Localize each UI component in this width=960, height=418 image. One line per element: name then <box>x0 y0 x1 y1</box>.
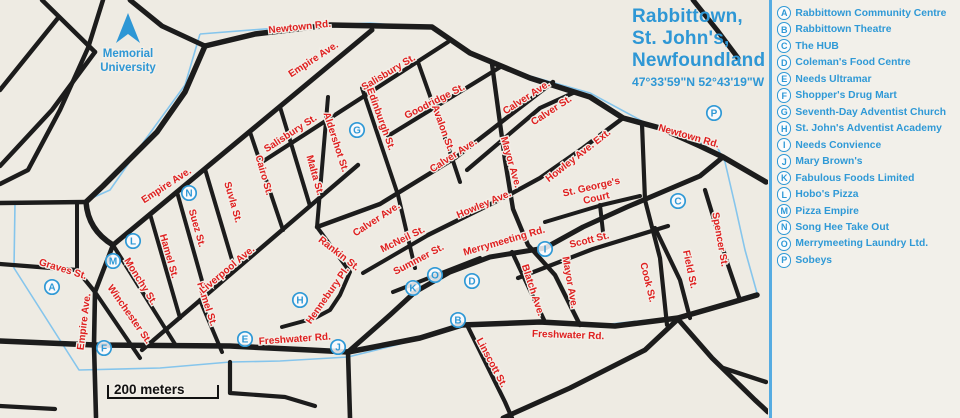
legend-item-p: PSobeys <box>777 253 960 267</box>
street-label-freshwater-rd: Freshwater Rd. <box>258 331 331 347</box>
street-label-mayor-ave: Mayor Ave. <box>498 136 523 190</box>
legend-marker-icon-m: M <box>777 204 791 218</box>
legend-item-h: HSt. John's Adventist Academy <box>777 121 960 135</box>
legend-marker-icon-a: A <box>777 6 791 20</box>
legend-label: The HUB <box>795 41 838 52</box>
legend-marker-icon-h: H <box>777 121 791 135</box>
legend-item-e: ENeeds Ultramar <box>777 72 960 86</box>
street-label-mayor-ave: Mayor Ave. <box>559 256 579 310</box>
legend-item-o: OMerrymeeting Laundry Ltd. <box>777 237 960 251</box>
memorial-university-label: University <box>100 62 156 74</box>
road <box>348 352 350 418</box>
street-label-cook-st: Cook St. <box>637 261 658 303</box>
legend-item-f: FShopper's Drug Mart <box>777 88 960 102</box>
legend-label: Seventh-Day Adventist Church <box>795 107 946 118</box>
legend-label: Coleman's Food Centre <box>795 57 910 68</box>
legend-marker-icon-c: C <box>777 39 791 53</box>
road <box>94 245 113 417</box>
legend-item-a: ARabbittown Community Centre <box>777 6 960 20</box>
map-marker-letter-d: D <box>468 277 475 288</box>
map-title-line2: St. John's, <box>632 28 782 50</box>
legend-panel: ARabbittown Community CentreBRabbittown … <box>769 0 960 418</box>
memorial-university-label: Memorial <box>103 48 154 60</box>
map-marker-letter-c: C <box>674 197 681 208</box>
legend-item-n: NSong Hee Take Out <box>777 220 960 234</box>
legend-item-k: KFabulous Foods Limited <box>777 171 960 185</box>
legend-marker-icon-o: O <box>777 237 791 251</box>
legend-item-b: BRabbittown Theatre <box>777 22 960 36</box>
legend-marker-icon-l: L <box>777 187 791 201</box>
legend-marker-icon-f: F <box>777 88 791 102</box>
legend-item-m: MPizza Empire <box>777 204 960 218</box>
map-marker-letter-e: E <box>242 335 249 346</box>
road <box>0 18 58 90</box>
legend-item-i: INeeds Convience <box>777 138 960 152</box>
map-marker-letter-f: F <box>101 344 107 355</box>
legend-marker-icon-b: B <box>777 22 791 36</box>
legend-label: Mary Brown's <box>795 156 862 167</box>
street-label-monchy-st: Monchy St. <box>121 256 159 307</box>
map-title-line1: Rabbittown, <box>632 6 782 28</box>
legend-item-l: LHobo's Pizza <box>777 187 960 201</box>
legend-label: Needs Ultramar <box>795 74 871 85</box>
street-label-freshwater-rd: Freshwater Rd. <box>532 329 605 343</box>
legend-marker-icon-i: I <box>777 138 791 152</box>
street-label-rankin-st: Rankin St. <box>316 235 361 274</box>
street-label-howley-ave-ext: Howley Ave. Ext. <box>544 127 613 185</box>
map-marker-letter-i: I <box>544 245 547 256</box>
street-label-avalon-st: Avalon St. <box>429 103 456 153</box>
map-marker-letter-h: H <box>296 296 303 307</box>
legend-label: Merrymeeting Laundry Ltd. <box>795 238 928 249</box>
map-title-line3: Newfoundland <box>632 50 782 72</box>
road <box>600 205 603 232</box>
legend-label: Song Hee Take Out <box>795 222 889 233</box>
map-marker-letter-p: P <box>711 109 718 120</box>
map-title: Rabbittown, St. John's, Newfoundland 47°… <box>632 6 782 89</box>
legend-marker-icon-n: N <box>777 220 791 234</box>
road <box>130 0 205 46</box>
street-label-salisbury-st: Salisbury St. <box>360 52 418 93</box>
legend-label: Fabulous Foods Limited <box>795 173 914 184</box>
legend-marker-icon-g: G <box>777 105 791 119</box>
legend-marker-icon-e: E <box>777 72 791 86</box>
map-marker-letter-k: K <box>409 284 417 295</box>
street-label-empire-ave: Empire Ave. <box>76 292 94 350</box>
street-label-newtown-rd: Newtown Rd. <box>657 123 721 151</box>
legend-label: Rabbittown Community Centre <box>795 8 946 19</box>
rabbittown-map-page: MemorialUniversityNewtown Rd.Newtown Rd.… <box>0 0 960 418</box>
map-marker-letter-a: A <box>48 283 55 294</box>
road <box>0 202 86 203</box>
map-marker-letter-n: N <box>185 189 192 200</box>
map-marker-letter-g: G <box>353 126 361 137</box>
map-marker-letter-b: B <box>454 316 461 327</box>
legend-item-d: DColeman's Food Centre <box>777 55 960 69</box>
legend-label: St. John's Adventist Academy <box>795 123 941 134</box>
legend-item-j: JMary Brown's <box>777 154 960 168</box>
street-label-cairo-st: Cairo St. <box>252 154 274 197</box>
legend-label: Sobeys <box>795 255 832 266</box>
legend-marker-icon-p: P <box>777 253 791 267</box>
road <box>677 318 768 412</box>
map-marker-letter-o: O <box>431 271 439 282</box>
street-label-spencer-st: Spencer St. <box>709 212 729 268</box>
road <box>230 362 315 406</box>
map-marker-letter-l: L <box>130 237 136 248</box>
scale-bar-label: 200 meters <box>114 382 185 397</box>
legend-marker-icon-j: J <box>777 154 791 168</box>
road <box>0 406 55 409</box>
legend-item-c: CThe HUB <box>777 39 960 53</box>
street-label-blatch-ave: Blatch Ave. <box>519 263 546 318</box>
legend-label: Shopper's Drug Mart <box>795 90 896 101</box>
street-label-howley-ave: Howley Ave. <box>455 188 513 221</box>
legend-label: Needs Convience <box>795 140 881 151</box>
legend-label: Pizza Empire <box>795 206 859 217</box>
map-coordinates: 47°33'59"N 52°43'19"W <box>632 75 782 89</box>
street-label-suvla-st: Suvla St. <box>221 180 243 224</box>
map-marker-letter-j: J <box>335 343 341 354</box>
north-arrow-icon <box>116 13 140 43</box>
street-label-linscott-st: Linscott St. <box>474 336 509 389</box>
street-label-newtown-rd: Newtown Rd. <box>268 19 332 37</box>
legend-item-g: GSeventh-Day Adventist Church <box>777 105 960 119</box>
legend-label: Rabbittown Theatre <box>795 24 891 35</box>
legend-label: Hobo's Pizza <box>795 189 858 200</box>
road <box>348 295 757 352</box>
street-label-hennebury-pl: Hennebury Pl. <box>304 265 352 327</box>
legend-marker-icon-d: D <box>777 55 791 69</box>
legend-marker-icon-k: K <box>777 171 791 185</box>
street-label-graves-st: Graves St. <box>37 257 88 282</box>
map-marker-letter-m: M <box>109 257 117 268</box>
